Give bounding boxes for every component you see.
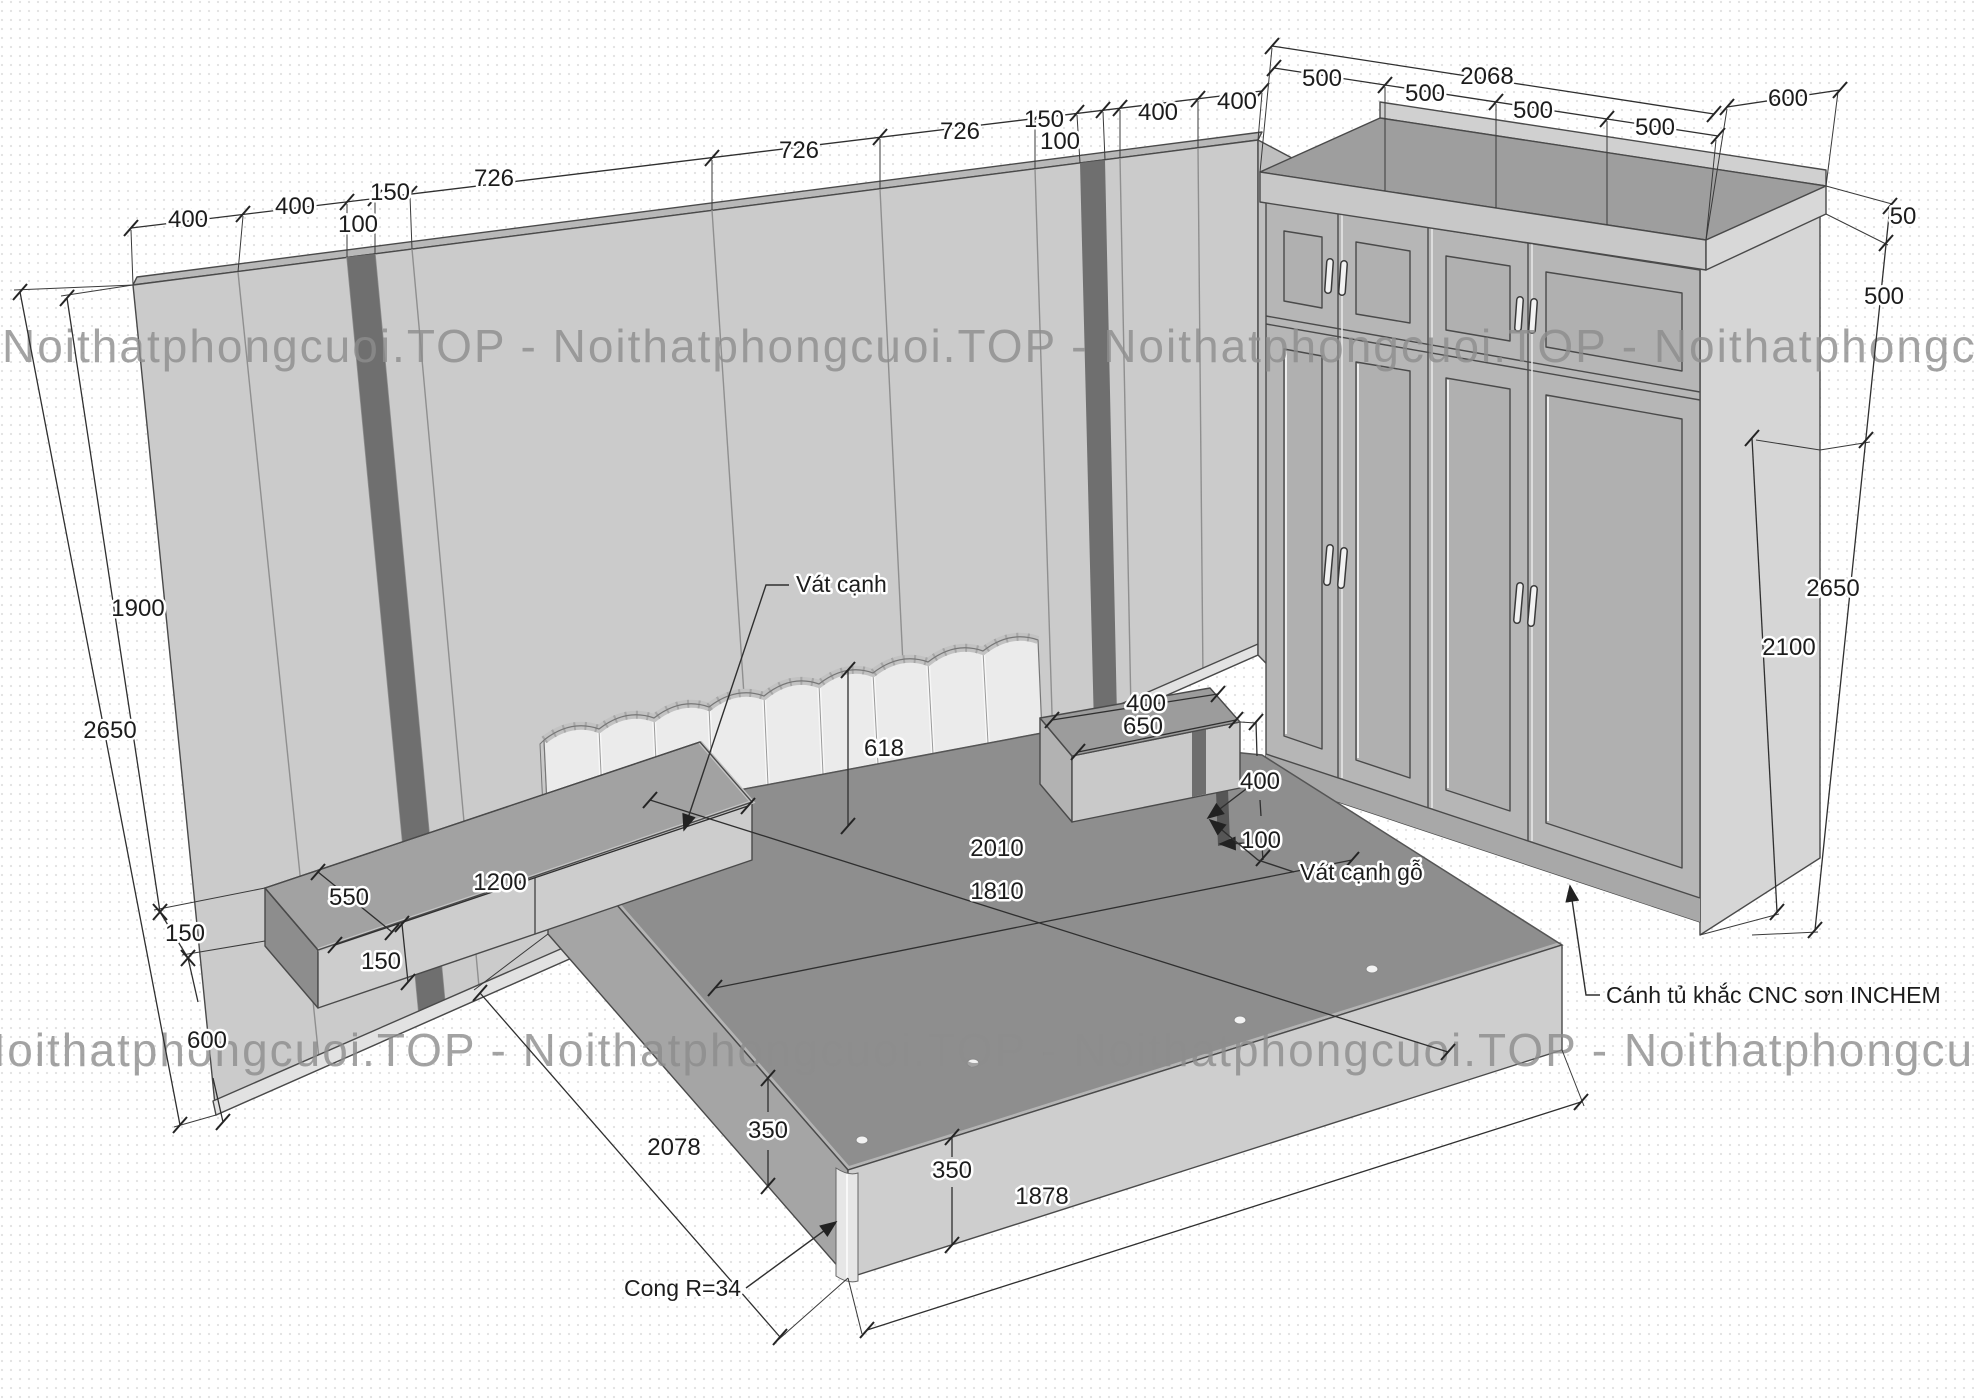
dim-right-total: 2650 (1806, 575, 1859, 602)
dim-right-trim: 50 (1890, 203, 1917, 230)
dim-wardrobe-overall: 2068 (1460, 63, 1513, 90)
main-door-panel-1 (1284, 349, 1322, 749)
dim-wall-726-3: 726 (940, 118, 980, 145)
dim-bed-base-left: 2078 (647, 1134, 700, 1161)
dim-wall-726-2: 726 (779, 137, 819, 164)
dim-wall-100-2: 100 (1040, 128, 1080, 155)
technical-drawing-page: Noithatphongcuoi.TOP - Noithatphongcuoi.… (0, 0, 1974, 1400)
dim-wall-400-4: 400 (1217, 88, 1257, 115)
note-corner-radius: Cong R=34 (624, 1275, 741, 1301)
note-wood-chamfer: Vát cạnh gỗ (1300, 859, 1423, 885)
dim-headboard-height: 618 (864, 735, 904, 762)
nightstand-accent-stripe (1192, 728, 1206, 797)
upper-door-panel-1 (1284, 231, 1322, 308)
dim-wall-400-3: 400 (1138, 99, 1178, 126)
dim-wardrobe-depth: 600 (1768, 85, 1808, 112)
dim-wall-400-2: 400 (275, 193, 315, 220)
dim-wardrobe-500-3: 500 (1513, 97, 1553, 124)
main-door-panel-4 (1546, 395, 1682, 868)
dim-left-below: 600 (187, 1027, 227, 1054)
dim-desk-thickness: 150 (361, 948, 401, 975)
dim-wall-726-1: 726 (474, 165, 514, 192)
upper-door-panel-2 (1356, 242, 1410, 323)
main-door-panel-3 (1446, 378, 1510, 811)
watermark-row-2: Noithatphongcuoi.TOP - Noithatphongcuoi.… (0, 1024, 1974, 1076)
watermark-row-1: Noithatphongcuoi.TOP - Noithatphongcuoi.… (2, 320, 1974, 372)
dim-nightstand-height: 400 (1240, 768, 1280, 795)
dim-right-main: 2100 (1762, 634, 1815, 661)
dim-wall-400-1: 400 (168, 206, 208, 233)
dim-bed-height-right: 350 (932, 1157, 972, 1184)
dim-left-panel: 1900 (111, 595, 164, 622)
dim-wardrobe-500-1: 500 (1302, 65, 1342, 92)
dim-wardrobe-500-2: 500 (1405, 80, 1445, 107)
dim-desk-depth: 550 (329, 884, 369, 911)
note-chamfer: Vát cạnh (796, 571, 887, 597)
dim-bed-length: 2010 (970, 835, 1023, 862)
main-door-panel-2 (1356, 362, 1410, 778)
bedroom-furniture-drawing: Noithatphongcuoi.TOP - Noithatphongcuoi.… (0, 0, 1974, 1400)
dim-bed-width: 1810 (970, 878, 1023, 905)
dim-right-upper: 500 (1864, 283, 1904, 310)
dim-wall-100-1: 100 (338, 211, 378, 238)
note-cnc-door: Cánh tủ khắc CNC sơn INCHEM (1606, 982, 1941, 1008)
dim-wall-150-1: 150 (370, 179, 410, 206)
dim-wardrobe-500-4: 500 (1635, 114, 1675, 141)
dim-left-desk-gap: 150 (165, 920, 205, 947)
dim-bed-base-right: 1878 (1015, 1183, 1068, 1210)
dim-nightstand-width: 650 (1123, 713, 1163, 740)
dim-bed-height-left: 350 (748, 1117, 788, 1144)
nightstand-leg (1216, 789, 1230, 846)
dim-desk-length: 1200 (473, 869, 526, 896)
dim-left-total: 2650 (83, 717, 136, 744)
